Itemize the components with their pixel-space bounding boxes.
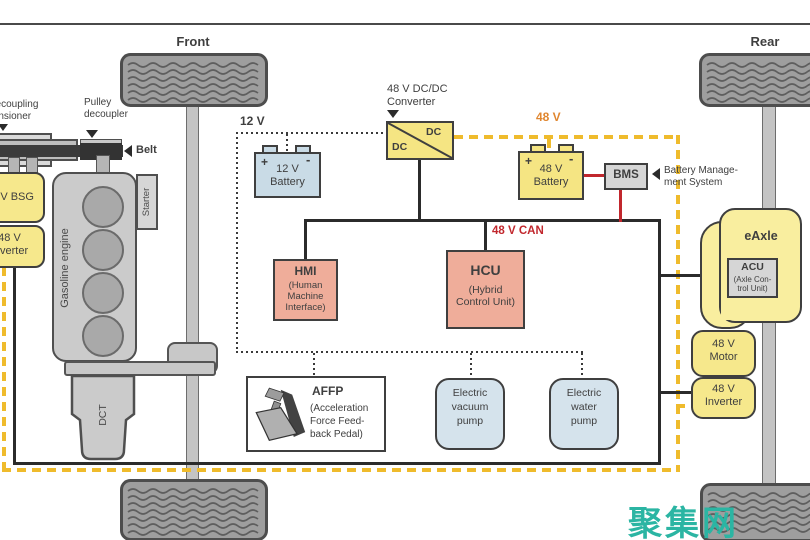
- dotted-12v-line-bottom: [236, 351, 583, 353]
- rear-right-wheel-top: [699, 53, 810, 109]
- front-left-wheel: [120, 53, 268, 109]
- engine-cylinder: [82, 186, 124, 228]
- bsg-shaft-2: [26, 157, 38, 173]
- pulley-decoupler-label: Pulley decoupler: [84, 97, 142, 121]
- eaxle-label: eAxle: [720, 229, 802, 244]
- dotted-12v-stub-battery: [286, 134, 288, 151]
- down-arrow-icon: [86, 130, 98, 138]
- engine-cylinder: [82, 229, 124, 271]
- inverter-branch-line: [658, 391, 694, 394]
- front-label: Front: [163, 34, 223, 49]
- engine-cylinder: [82, 272, 124, 314]
- vacuum-pump-label: Electric vacuum pump: [435, 386, 505, 428]
- top-frame-line: [0, 23, 810, 25]
- dotted-12v-stub-water: [581, 353, 583, 378]
- battery12-label: 12 V Battery: [254, 163, 321, 189]
- dct-label: DCT: [97, 395, 109, 435]
- bsg-shaft: [8, 157, 20, 173]
- down-arrow-icon: [387, 110, 399, 118]
- front-axle-shaft: [186, 100, 199, 482]
- dcdc-dc-top: DC: [426, 126, 441, 138]
- hmi-subtitle: (Human Machine Interface): [273, 280, 338, 314]
- dcdc-dc-bottom: DC: [392, 141, 407, 153]
- left-arrow-icon: [652, 168, 660, 180]
- crank-pulley-shaft: [96, 155, 110, 173]
- down-arrow-icon: [0, 124, 8, 131]
- bms-label: BMS: [604, 169, 648, 183]
- can-bus-label: 48 V CAN: [492, 225, 544, 239]
- bms-to-can-line: [619, 190, 622, 222]
- hcu-title: HCU: [446, 262, 525, 279]
- dashed-48v-line-bottom: [2, 468, 678, 472]
- bms-annotation: Battery Manage- ment System: [664, 165, 754, 189]
- can-to-hcu-line: [484, 219, 487, 252]
- bottom-power-line: [13, 462, 661, 465]
- left-arrow-icon: [124, 145, 132, 157]
- dcdc-to-can-line: [418, 160, 421, 221]
- dashed-48v-stub-battery: [547, 139, 551, 151]
- decoupling-tensioner-label: decoupling tensioner: [0, 99, 54, 123]
- pedal-icon: [253, 382, 315, 448]
- rear-inverter-label: 48 V Inverter: [691, 383, 756, 409]
- dashed-48v-line-left: [2, 267, 6, 468]
- battery48-to-bms-line: [584, 174, 605, 177]
- starter-label: Starter: [141, 174, 153, 230]
- battery48-label: 48 V Battery: [518, 163, 584, 189]
- dotted-12v-stub-vacuum: [470, 353, 472, 378]
- 48v-net-label: 48 V: [536, 110, 561, 124]
- engine-cylinder: [82, 315, 124, 357]
- dotted-12v-line-left: [236, 132, 238, 353]
- dotted-12v-stub-affp: [313, 353, 315, 376]
- dashed-48v-line-top: [454, 135, 678, 139]
- affp-subtitle: (Acceleration Force Feed- back Pedal): [310, 402, 386, 441]
- motor-label: 48 V Motor: [691, 338, 756, 364]
- dotted-12v-line-top: [236, 132, 386, 134]
- dashed-48v-stub-inverter: [676, 404, 692, 408]
- 12v-net-label: 12 V: [240, 114, 265, 128]
- bsg-inverter-label: 48 V Inverter: [0, 232, 45, 258]
- dcdc-title: 48 V DC/DC Converter: [387, 83, 467, 109]
- rear-label: Rear: [735, 34, 795, 49]
- affp-title: AFFP: [312, 384, 343, 398]
- acu-title: ACU: [727, 261, 778, 273]
- acu-subtitle: (Axle Con- trol Unit): [727, 275, 778, 293]
- can-bus-line: [304, 219, 661, 222]
- watermark-logo: 聚集网: [628, 496, 739, 540]
- left-power-line: [13, 267, 16, 465]
- hcu-subtitle: (Hybrid Control Unit): [446, 284, 525, 309]
- front-left-wheel-bottom: [120, 479, 268, 540]
- hmi-title: HMI: [273, 264, 338, 278]
- belt-label: Belt: [136, 144, 157, 157]
- bsg-label: 48 V BSG: [0, 191, 45, 204]
- right-power-line: [658, 219, 661, 465]
- hybrid-powertrain-diagram: Front Rear decoupling tensioner Pulley d…: [0, 0, 810, 540]
- can-to-hmi-line: [304, 219, 307, 261]
- water-pump-label: Electric water pump: [549, 386, 619, 428]
- gasoline-engine-label: Gasoline engine: [59, 198, 73, 338]
